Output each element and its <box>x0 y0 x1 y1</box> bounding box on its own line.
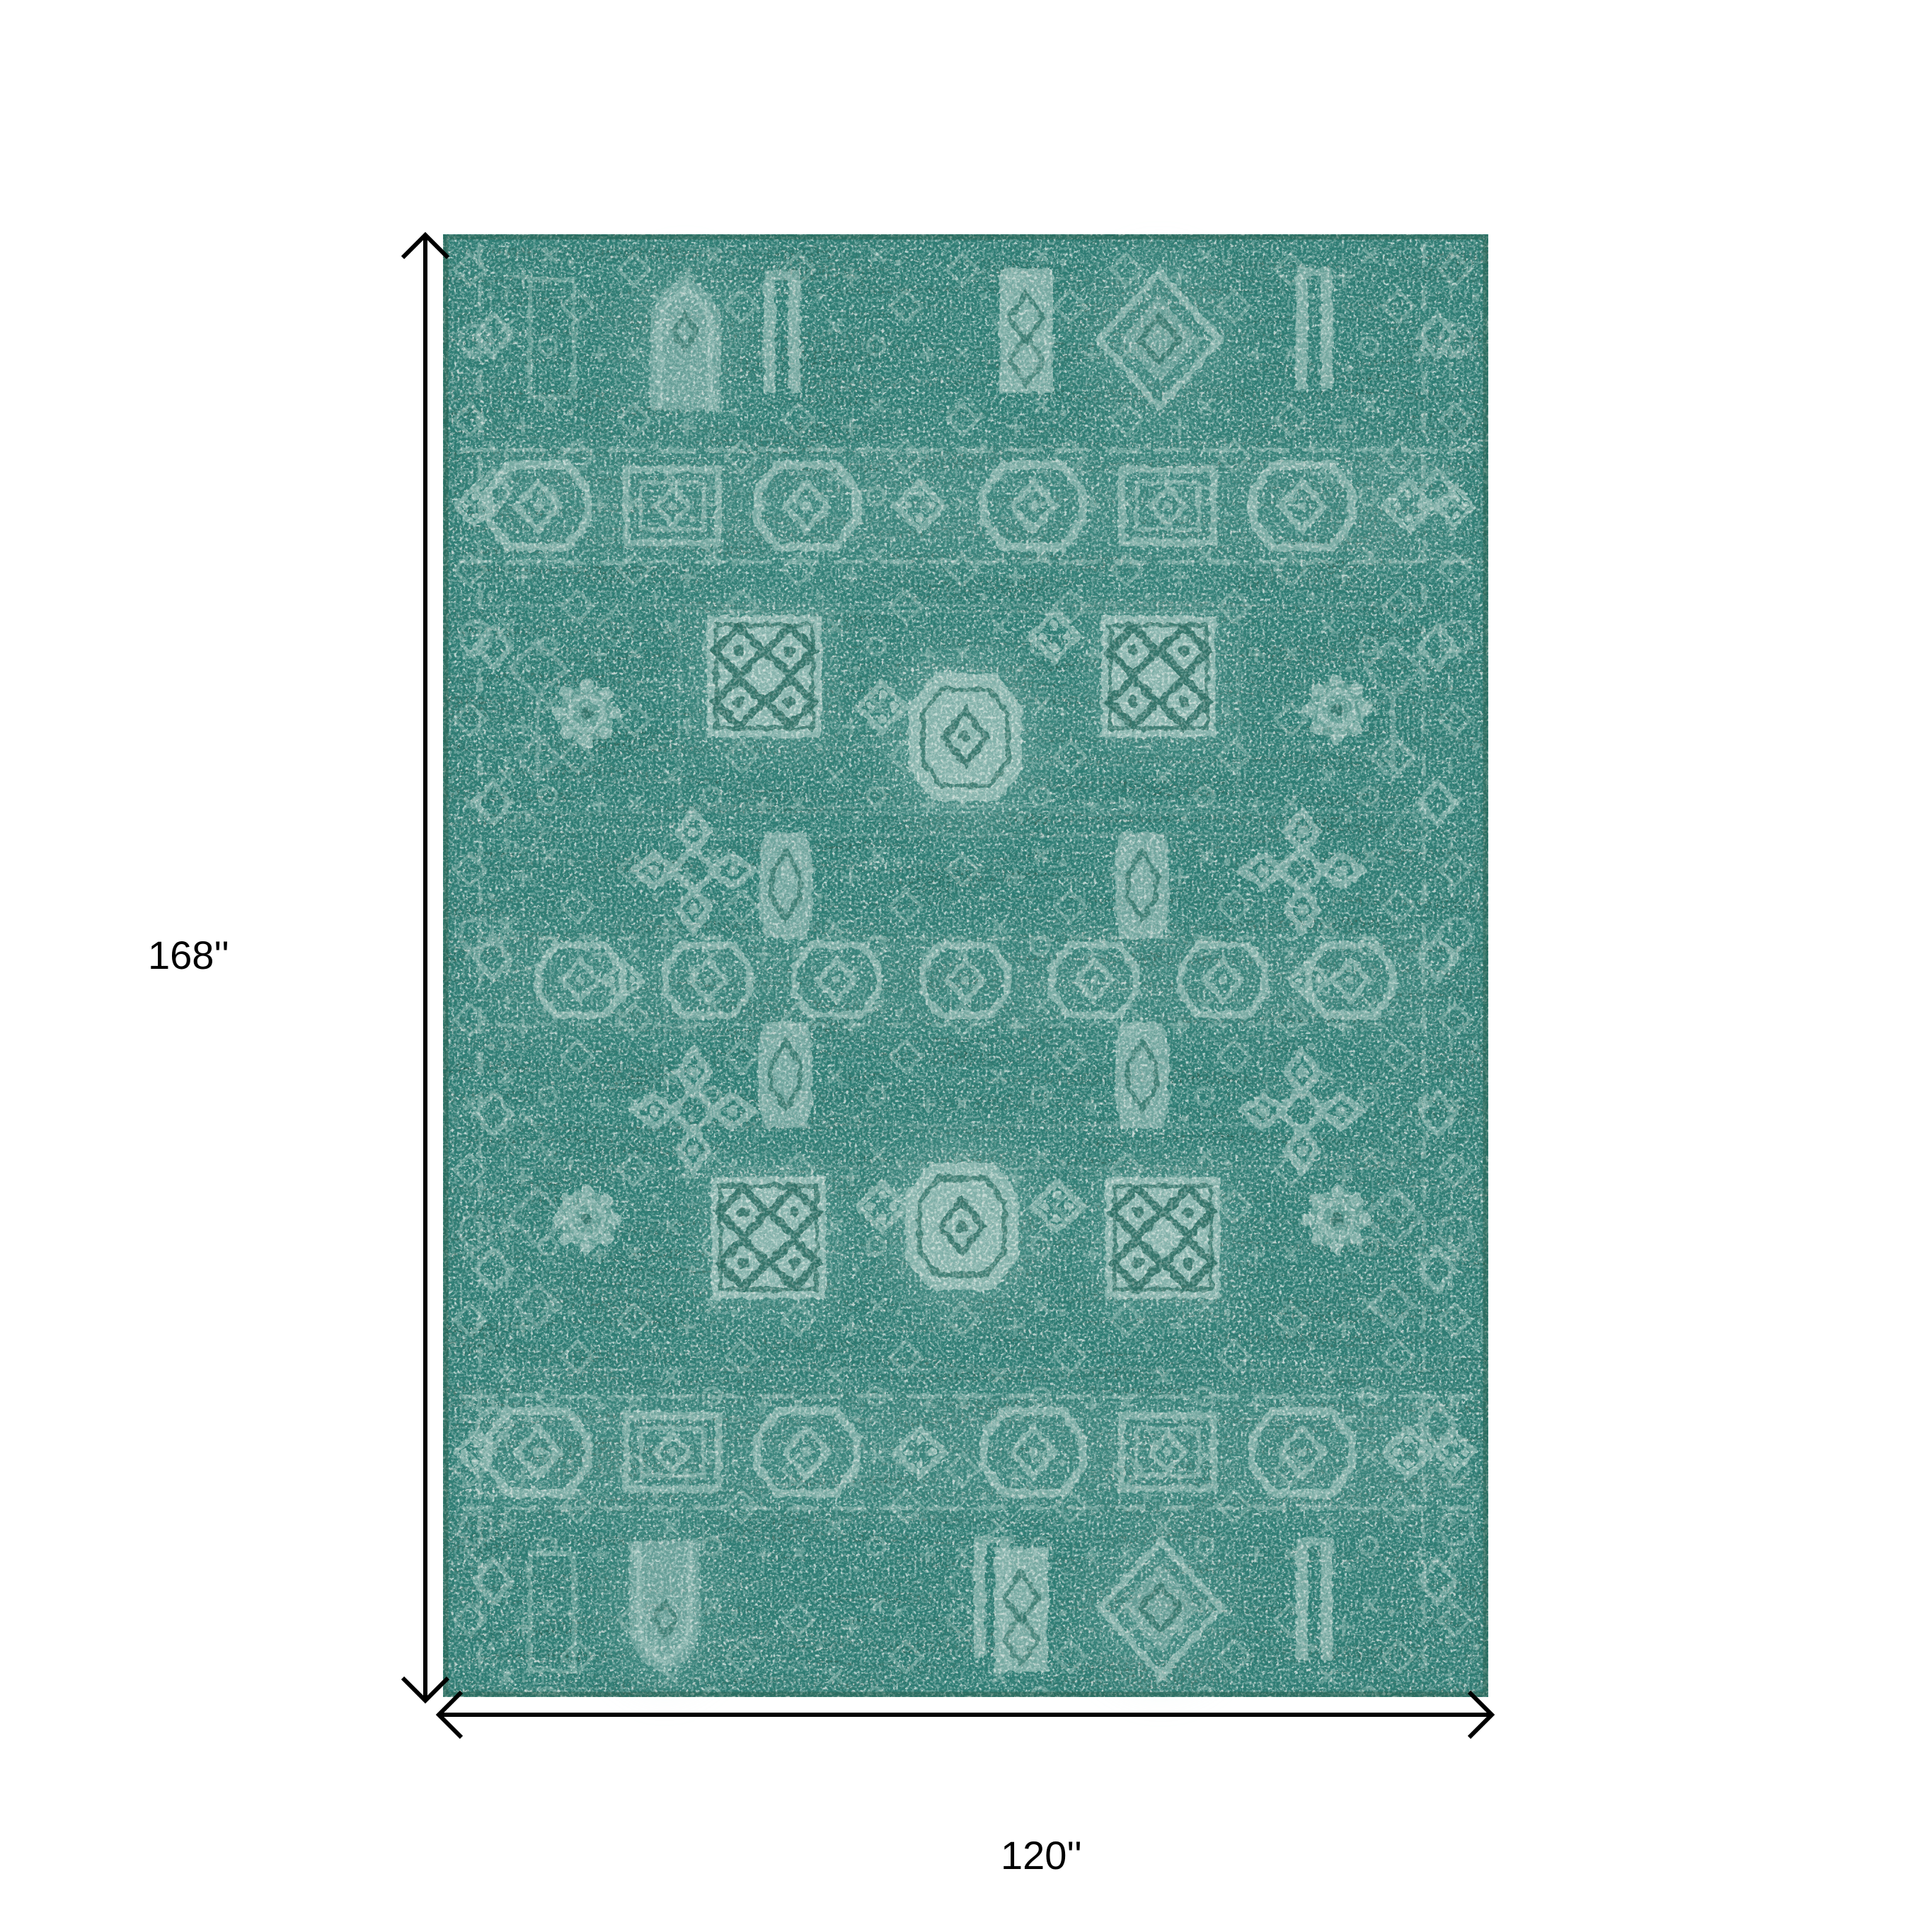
svg-text:120'': 120'' <box>1001 1833 1082 1878</box>
svg-text:168'': 168'' <box>148 933 229 977</box>
